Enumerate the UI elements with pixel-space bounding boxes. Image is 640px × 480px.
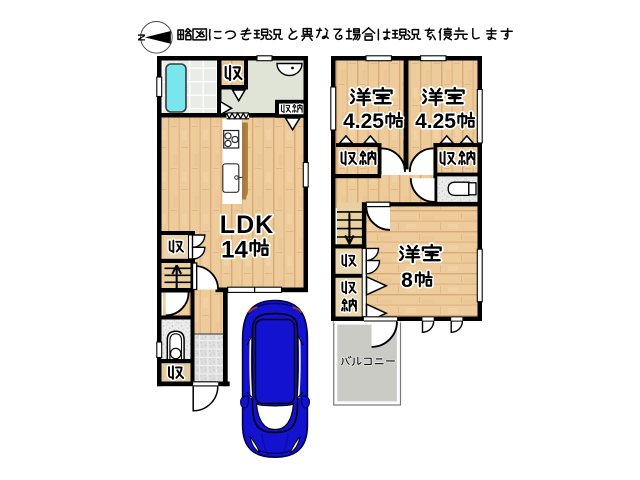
svg-text:4.25: 4.25 <box>343 110 384 133</box>
svg-text:4.25: 4.25 <box>415 110 456 133</box>
svg-text:N: N <box>136 34 148 42</box>
svg-text:LDK: LDK <box>220 211 274 239</box>
svg-text:8: 8 <box>401 269 413 292</box>
svg-text:14: 14 <box>221 237 248 264</box>
